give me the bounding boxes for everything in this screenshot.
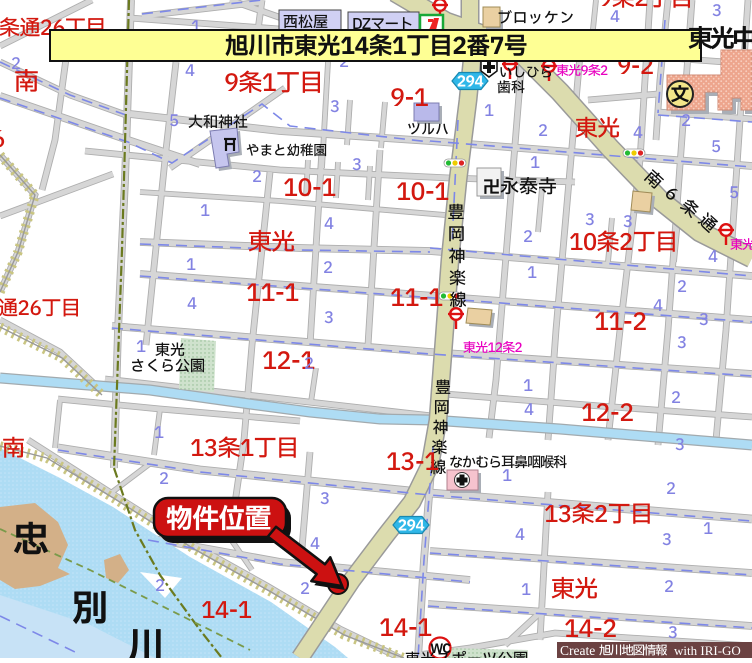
svg-text:Create: Create bbox=[560, 643, 595, 658]
svg-text:with IRI-GO: with IRI-GO bbox=[674, 643, 741, 658]
